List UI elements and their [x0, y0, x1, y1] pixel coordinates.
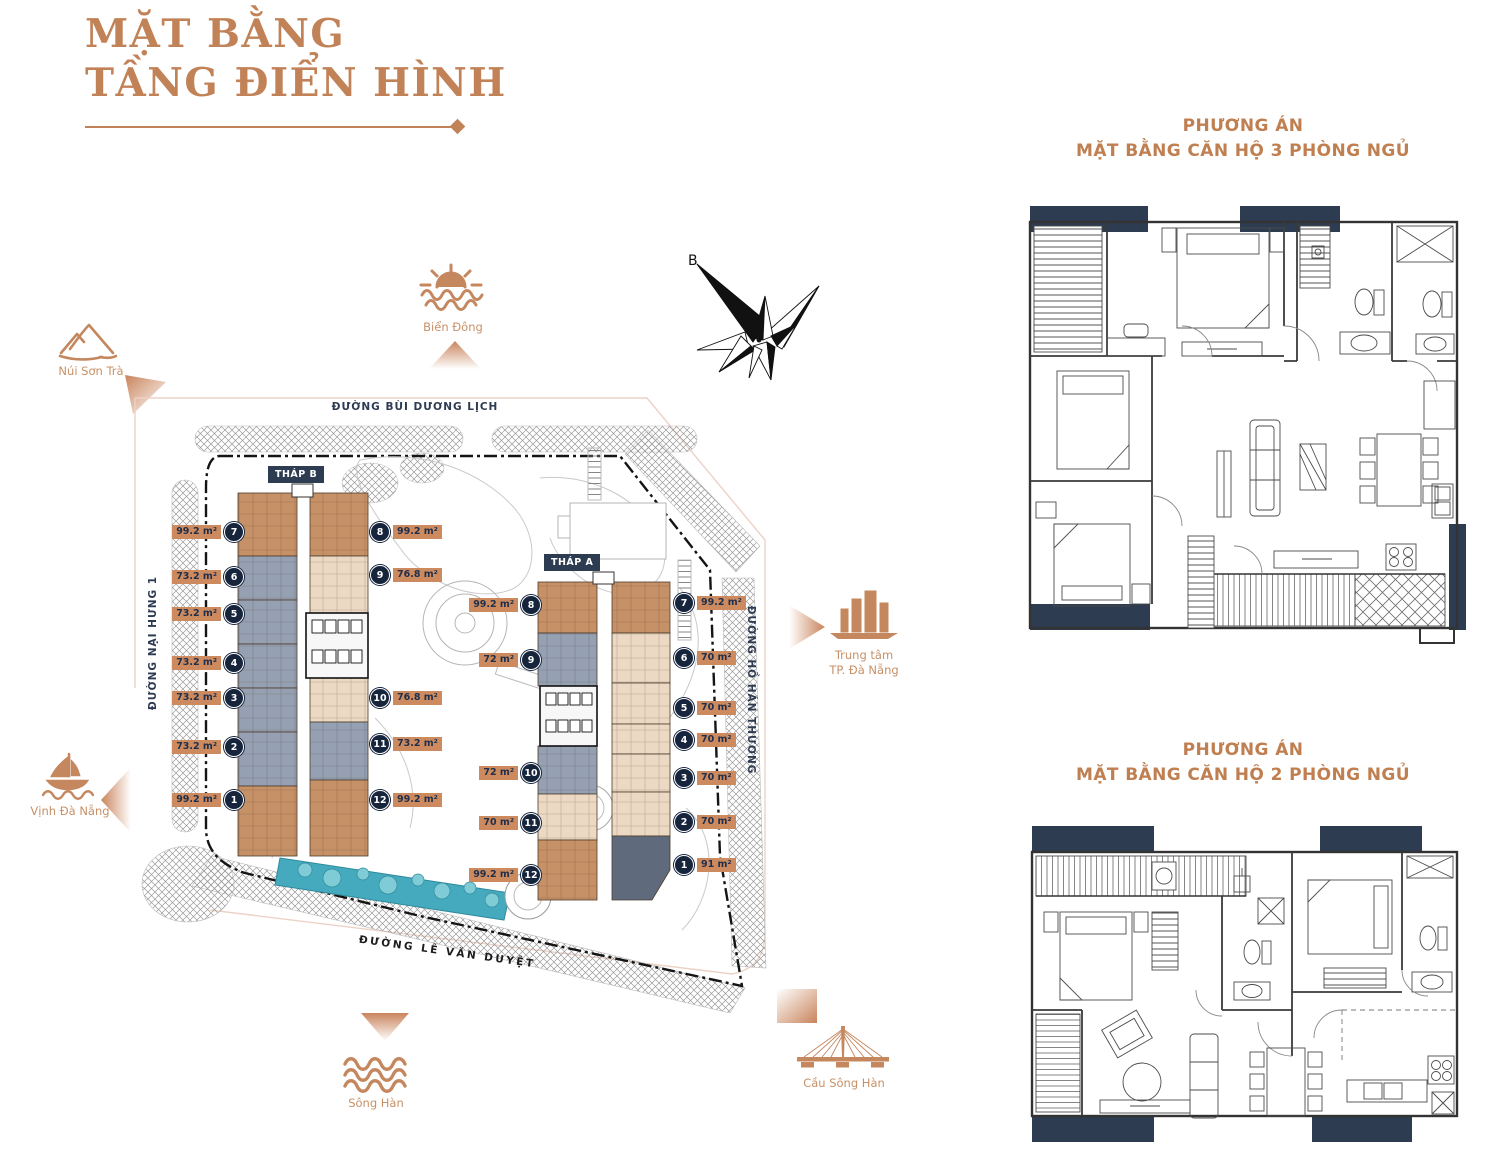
plan-2br-heading: PHƯƠNG ÁN MẶT BẰNG CĂN HỘ 2 PHÒNG NGỦ — [1012, 738, 1474, 787]
site-plan: ĐƯỜNG BÙI DƯƠNG LỊCH ĐƯỜNG NẠI HƯNG 1 ĐƯ… — [120, 388, 770, 1013]
unit-marker: 72 m² 10 — [479, 763, 541, 783]
unit-marker: 3 70 m² — [674, 768, 736, 788]
plan-3br-heading-line2: MẶT BẰNG CĂN HỘ 3 PHÒNG NGỦ — [1012, 139, 1474, 164]
unit-area: 76.8 m² — [393, 568, 442, 583]
unit-number: 11 — [370, 734, 390, 754]
kitchen — [1342, 1010, 1457, 1114]
unit-marker: 10 76.8 m² — [370, 688, 442, 708]
living — [1100, 1010, 1218, 1118]
dining-table — [1360, 434, 1438, 506]
unit-marker: 11 73.2 m² — [370, 734, 442, 754]
unit-marker: 9 76.8 m² — [370, 565, 442, 585]
unit-area: 73.2 m² — [172, 570, 221, 585]
unit-marker: 7 99.2 m² — [674, 593, 746, 613]
unit-marker: 6 70 m² — [674, 648, 736, 668]
arrow-down-icon — [360, 1012, 410, 1042]
unit-area: 73.2 m² — [172, 740, 221, 755]
landmark-label-cau-song-han: Cầu Sông Hàn — [770, 1076, 918, 1091]
unit-marker: 1 91 m² — [674, 855, 736, 875]
arrow-up-icon — [428, 340, 482, 370]
plan-2br-heading-line2: MẶT BẰNG CĂN HỘ 2 PHÒNG NGỦ — [1012, 763, 1474, 788]
unit-number: 12 — [370, 790, 390, 810]
unit-area: 70 m² — [697, 771, 736, 786]
unit-marker: 99.2 m² 12 — [469, 865, 541, 885]
unit-number: 12 — [521, 865, 541, 885]
unit-number: 11 — [521, 813, 541, 833]
unit-area: 99.2 m² — [393, 525, 442, 540]
unit-number: 5 — [674, 698, 694, 718]
tower-b — [238, 484, 368, 856]
landmark-label-trung-tam-line2: TP. Đà Nẵng — [806, 663, 922, 678]
unit-marker: 72 m² 9 — [479, 650, 541, 670]
unit-area: 99.2 m² — [393, 793, 442, 808]
unit-number: 2 — [674, 812, 694, 832]
mountain-icon — [56, 316, 122, 362]
bed-2 — [1057, 371, 1129, 469]
unit-marker: 73.2 m² 4 — [172, 653, 244, 673]
dining-table — [1250, 1048, 1322, 1116]
boat-icon — [38, 750, 98, 802]
tower-a — [538, 572, 670, 900]
street-label-right: ĐƯỜNG HỒ HÁN THƯƠNG — [745, 606, 757, 775]
arrow-diag-icon — [776, 988, 818, 1024]
page-title: MẶT BẰNG TẦNG ĐIỂN HÌNH — [85, 10, 507, 108]
sofa — [1250, 420, 1280, 516]
unit-area: 70 m² — [697, 733, 736, 748]
unit-marker: 73.2 m² 3 — [172, 688, 244, 708]
unit-area: 99.2 m² — [697, 596, 746, 611]
unit-number: 7 — [674, 593, 694, 613]
unit-number: 8 — [521, 595, 541, 615]
unit-area: 73.2 m² — [172, 656, 221, 671]
unit-marker: 73.2 m² 2 — [172, 737, 244, 757]
landmark-label-song-han: Sông Hàn — [314, 1096, 438, 1111]
arrow-right-icon — [788, 604, 826, 650]
unit-marker: 4 70 m² — [674, 730, 736, 750]
kitchen — [1274, 381, 1455, 570]
unit-number: 7 — [224, 522, 244, 542]
unit-number: 8 — [370, 522, 390, 542]
city-icon — [826, 582, 902, 646]
unit-number: 10 — [521, 763, 541, 783]
unit-area: 72 m² — [479, 653, 518, 668]
unit-area: 73.2 m² — [172, 691, 221, 706]
bed-master — [1162, 228, 1284, 328]
unit-number: 9 — [370, 565, 390, 585]
unit-number: 10 — [370, 688, 390, 708]
page-title-line1: MẶT BẰNG — [85, 10, 507, 59]
landmark-label-trung-tam-line1: Trung tâm — [806, 648, 922, 663]
unit-marker: 2 70 m² — [674, 812, 736, 832]
unit-area: 72 m² — [479, 766, 518, 781]
bathroom-2 — [1407, 856, 1453, 992]
unit-number: 4 — [224, 653, 244, 673]
unit-area: 73.2 m² — [393, 737, 442, 752]
unit-marker: 99.2 m² 1 — [172, 790, 244, 810]
unit-area: 70 m² — [479, 816, 518, 831]
bridge-icon — [794, 1024, 892, 1074]
bed-3 — [1036, 502, 1150, 606]
sun-sea-icon — [418, 260, 486, 318]
unit-area: 99.2 m² — [469, 868, 518, 883]
unit-area: 76.8 m² — [393, 691, 442, 706]
bed-2 — [1308, 880, 1392, 954]
brochure-page: MẶT BẰNG TẦNG ĐIỂN HÌNH Núi Sơn Trà Biển… — [0, 0, 1500, 1172]
unit-marker: 73.2 m² 5 — [172, 604, 244, 624]
unit-area: 70 m² — [697, 651, 736, 666]
landmark-label-trung-tam: Trung tâm TP. Đà Nẵng — [806, 648, 922, 678]
bathroom-2 — [1397, 226, 1454, 354]
waves-icon — [340, 1056, 412, 1096]
plan-2br-heading-line1: PHƯƠNG ÁN — [1012, 738, 1474, 763]
tower-a-tag: THÁP A — [544, 554, 600, 571]
floorplan-3br — [1012, 196, 1474, 654]
unit-marker: 73.2 m² 6 — [172, 567, 244, 587]
unit-marker: 8 99.2 m² — [370, 522, 442, 542]
unit-marker: 70 m² 11 — [479, 813, 541, 833]
unit-number: 5 — [224, 604, 244, 624]
plan-3br-heading: PHƯƠNG ÁN MẶT BẰNG CĂN HỘ 3 PHÒNG NGỦ — [1012, 114, 1474, 163]
unit-area: 73.2 m² — [172, 607, 221, 622]
unit-area: 70 m² — [697, 815, 736, 830]
street-label-left: ĐƯỜNG NẠI HƯNG 1 — [147, 576, 159, 710]
compass-north-label: B — [688, 253, 698, 269]
unit-number: 6 — [674, 648, 694, 668]
plan-3br-heading-line1: PHƯƠNG ÁN — [1012, 114, 1474, 139]
landmark-label-bien-dong: Biển Đông — [408, 320, 498, 335]
page-title-line2: TẦNG ĐIỂN HÌNH — [85, 59, 507, 108]
unit-area: 70 m² — [697, 701, 736, 716]
unit-area: 99.2 m² — [172, 793, 221, 808]
unit-area: 99.2 m² — [469, 598, 518, 613]
floorplan-2br — [1012, 820, 1474, 1152]
unit-marker: 12 99.2 m² — [370, 790, 442, 810]
unit-area: 99.2 m² — [172, 525, 221, 540]
unit-number: 3 — [674, 768, 694, 788]
unit-area: 91 m² — [697, 858, 736, 873]
compass-icon — [683, 250, 823, 382]
unit-number: 3 — [224, 688, 244, 708]
unit-number: 1 — [224, 790, 244, 810]
street-label-top: ĐƯỜNG BÙI DƯƠNG LỊCH — [280, 401, 550, 413]
unit-marker: 5 70 m² — [674, 698, 736, 718]
title-divider — [85, 126, 457, 128]
unit-marker: 99.2 m² 8 — [469, 595, 541, 615]
unit-number: 4 — [674, 730, 694, 750]
bed-1 — [1044, 912, 1148, 1000]
unit-number: 2 — [224, 737, 244, 757]
tower-b-tag: THÁP B — [268, 466, 324, 483]
title-divider-diamond — [450, 119, 466, 135]
unit-number: 6 — [224, 567, 244, 587]
unit-number: 1 — [674, 855, 694, 875]
unit-number: 9 — [521, 650, 541, 670]
unit-marker: 99.2 m² 7 — [172, 522, 244, 542]
